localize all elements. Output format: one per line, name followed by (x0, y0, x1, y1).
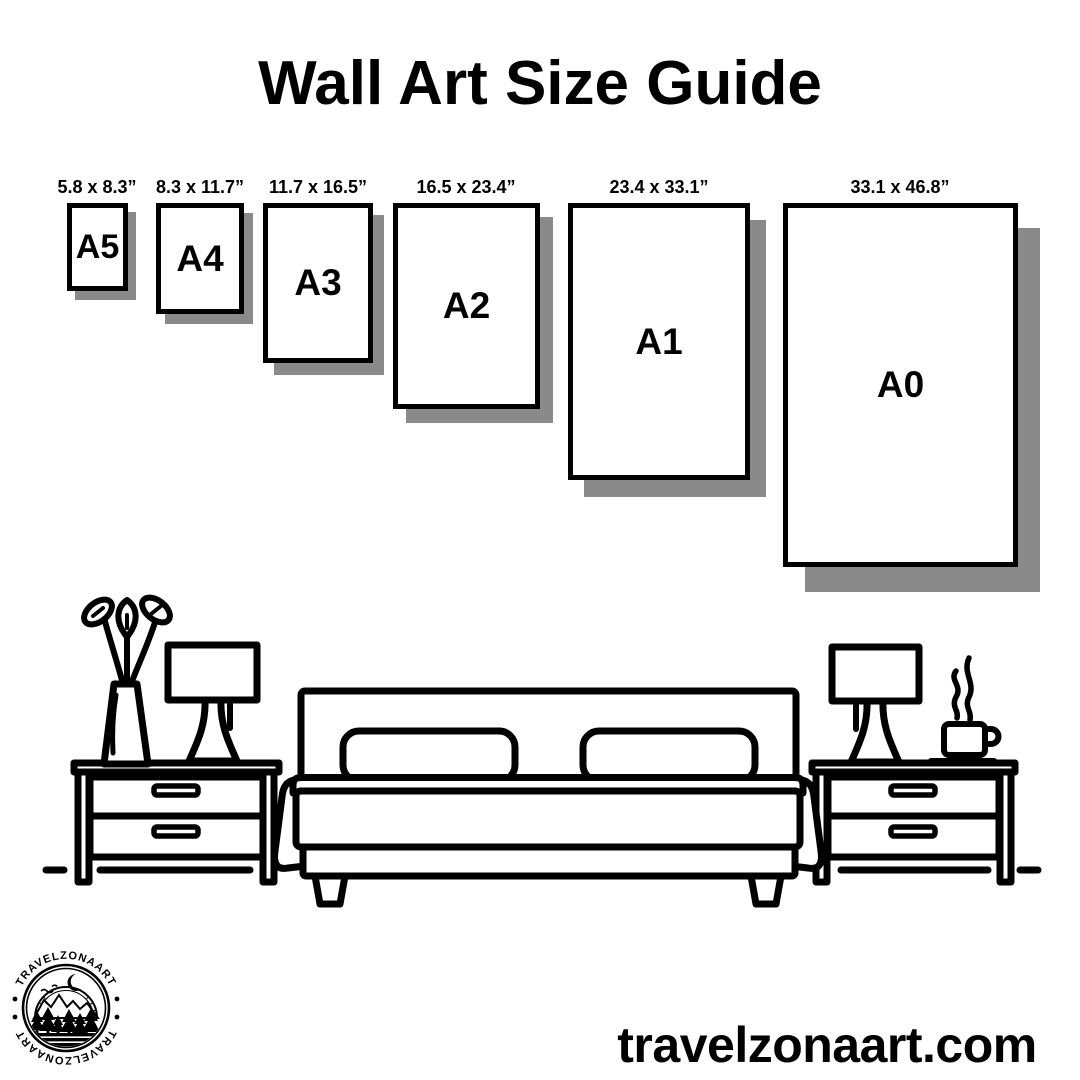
paper-size-a4: A4 (156, 203, 244, 314)
coffee-cup-icon (931, 658, 999, 761)
paper-size-a2: A2 (393, 203, 540, 409)
a0-dimensions-label: 33.1 x 46.8” (850, 177, 949, 198)
double-bed-icon (275, 691, 822, 904)
website-url: travelzonaart.com (560, 1016, 1080, 1074)
a5-dimensions-label: 5.8 x 8.3” (57, 177, 136, 198)
paper-size-a3: A3 (263, 203, 373, 363)
a3-dimensions-label: 11.7 x 16.5” (269, 177, 367, 198)
left-nightstand-icon (74, 763, 279, 882)
a2-dimensions-label: 16.5 x 23.4” (416, 177, 515, 198)
paper-size-a1: A1 (568, 203, 750, 480)
a1-dimensions-label: 23.4 x 33.1” (609, 177, 708, 198)
right-table-lamp-icon (832, 647, 919, 762)
page-title: Wall Art Size Guide (0, 48, 1080, 119)
paper-size-a0: A0 (783, 203, 1018, 567)
left-table-lamp-icon (168, 645, 257, 761)
bedroom-illustration (0, 585, 1080, 915)
paper-size-a5: A5 (67, 203, 128, 291)
right-nightstand-icon (812, 763, 1015, 882)
a4-dimensions-label: 8.3 x 11.7” (156, 177, 244, 198)
brand-logo: TRAVELZONAART TRAVELZONAART (0, 938, 132, 1078)
flower-vase-icon (80, 593, 175, 764)
